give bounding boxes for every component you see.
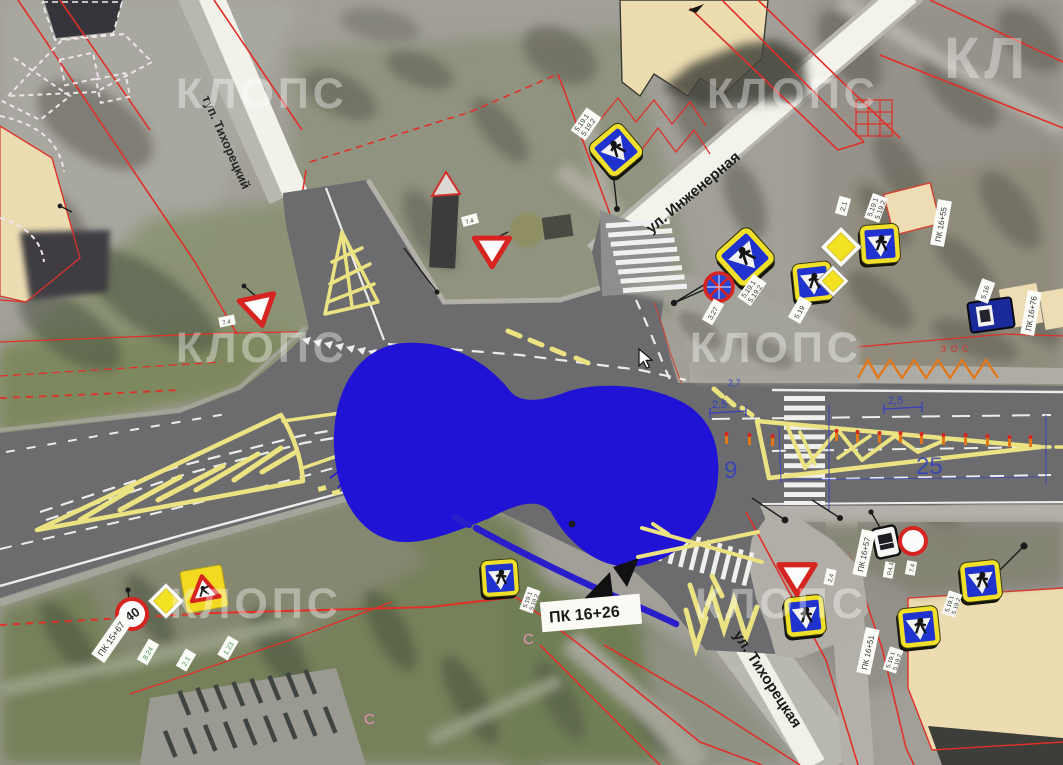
svg-text:КЛОПС: КЛОПС: [170, 580, 342, 628]
svg-text:КЛОПС: КЛОПС: [690, 324, 862, 372]
svg-text:C: C: [364, 711, 375, 728]
svg-text:25: 25: [916, 453, 943, 480]
svg-text:з о с: з о с: [940, 340, 969, 355]
svg-text:КЛОПС: КЛОПС: [176, 324, 348, 372]
svg-text:КЛОПС: КЛОПС: [707, 70, 879, 118]
svg-text:КЛОПС: КЛОПС: [695, 580, 867, 628]
svg-text:9: 9: [724, 457, 737, 484]
svg-text:2,7: 2,7: [728, 378, 741, 388]
svg-text:КЛ: КЛ: [944, 26, 1030, 91]
svg-text:2,5: 2,5: [888, 395, 903, 407]
svg-text:2,5: 2,5: [712, 399, 727, 411]
svg-text:КЛОПС: КЛОПС: [176, 70, 348, 118]
svg-text:C: C: [523, 631, 534, 648]
